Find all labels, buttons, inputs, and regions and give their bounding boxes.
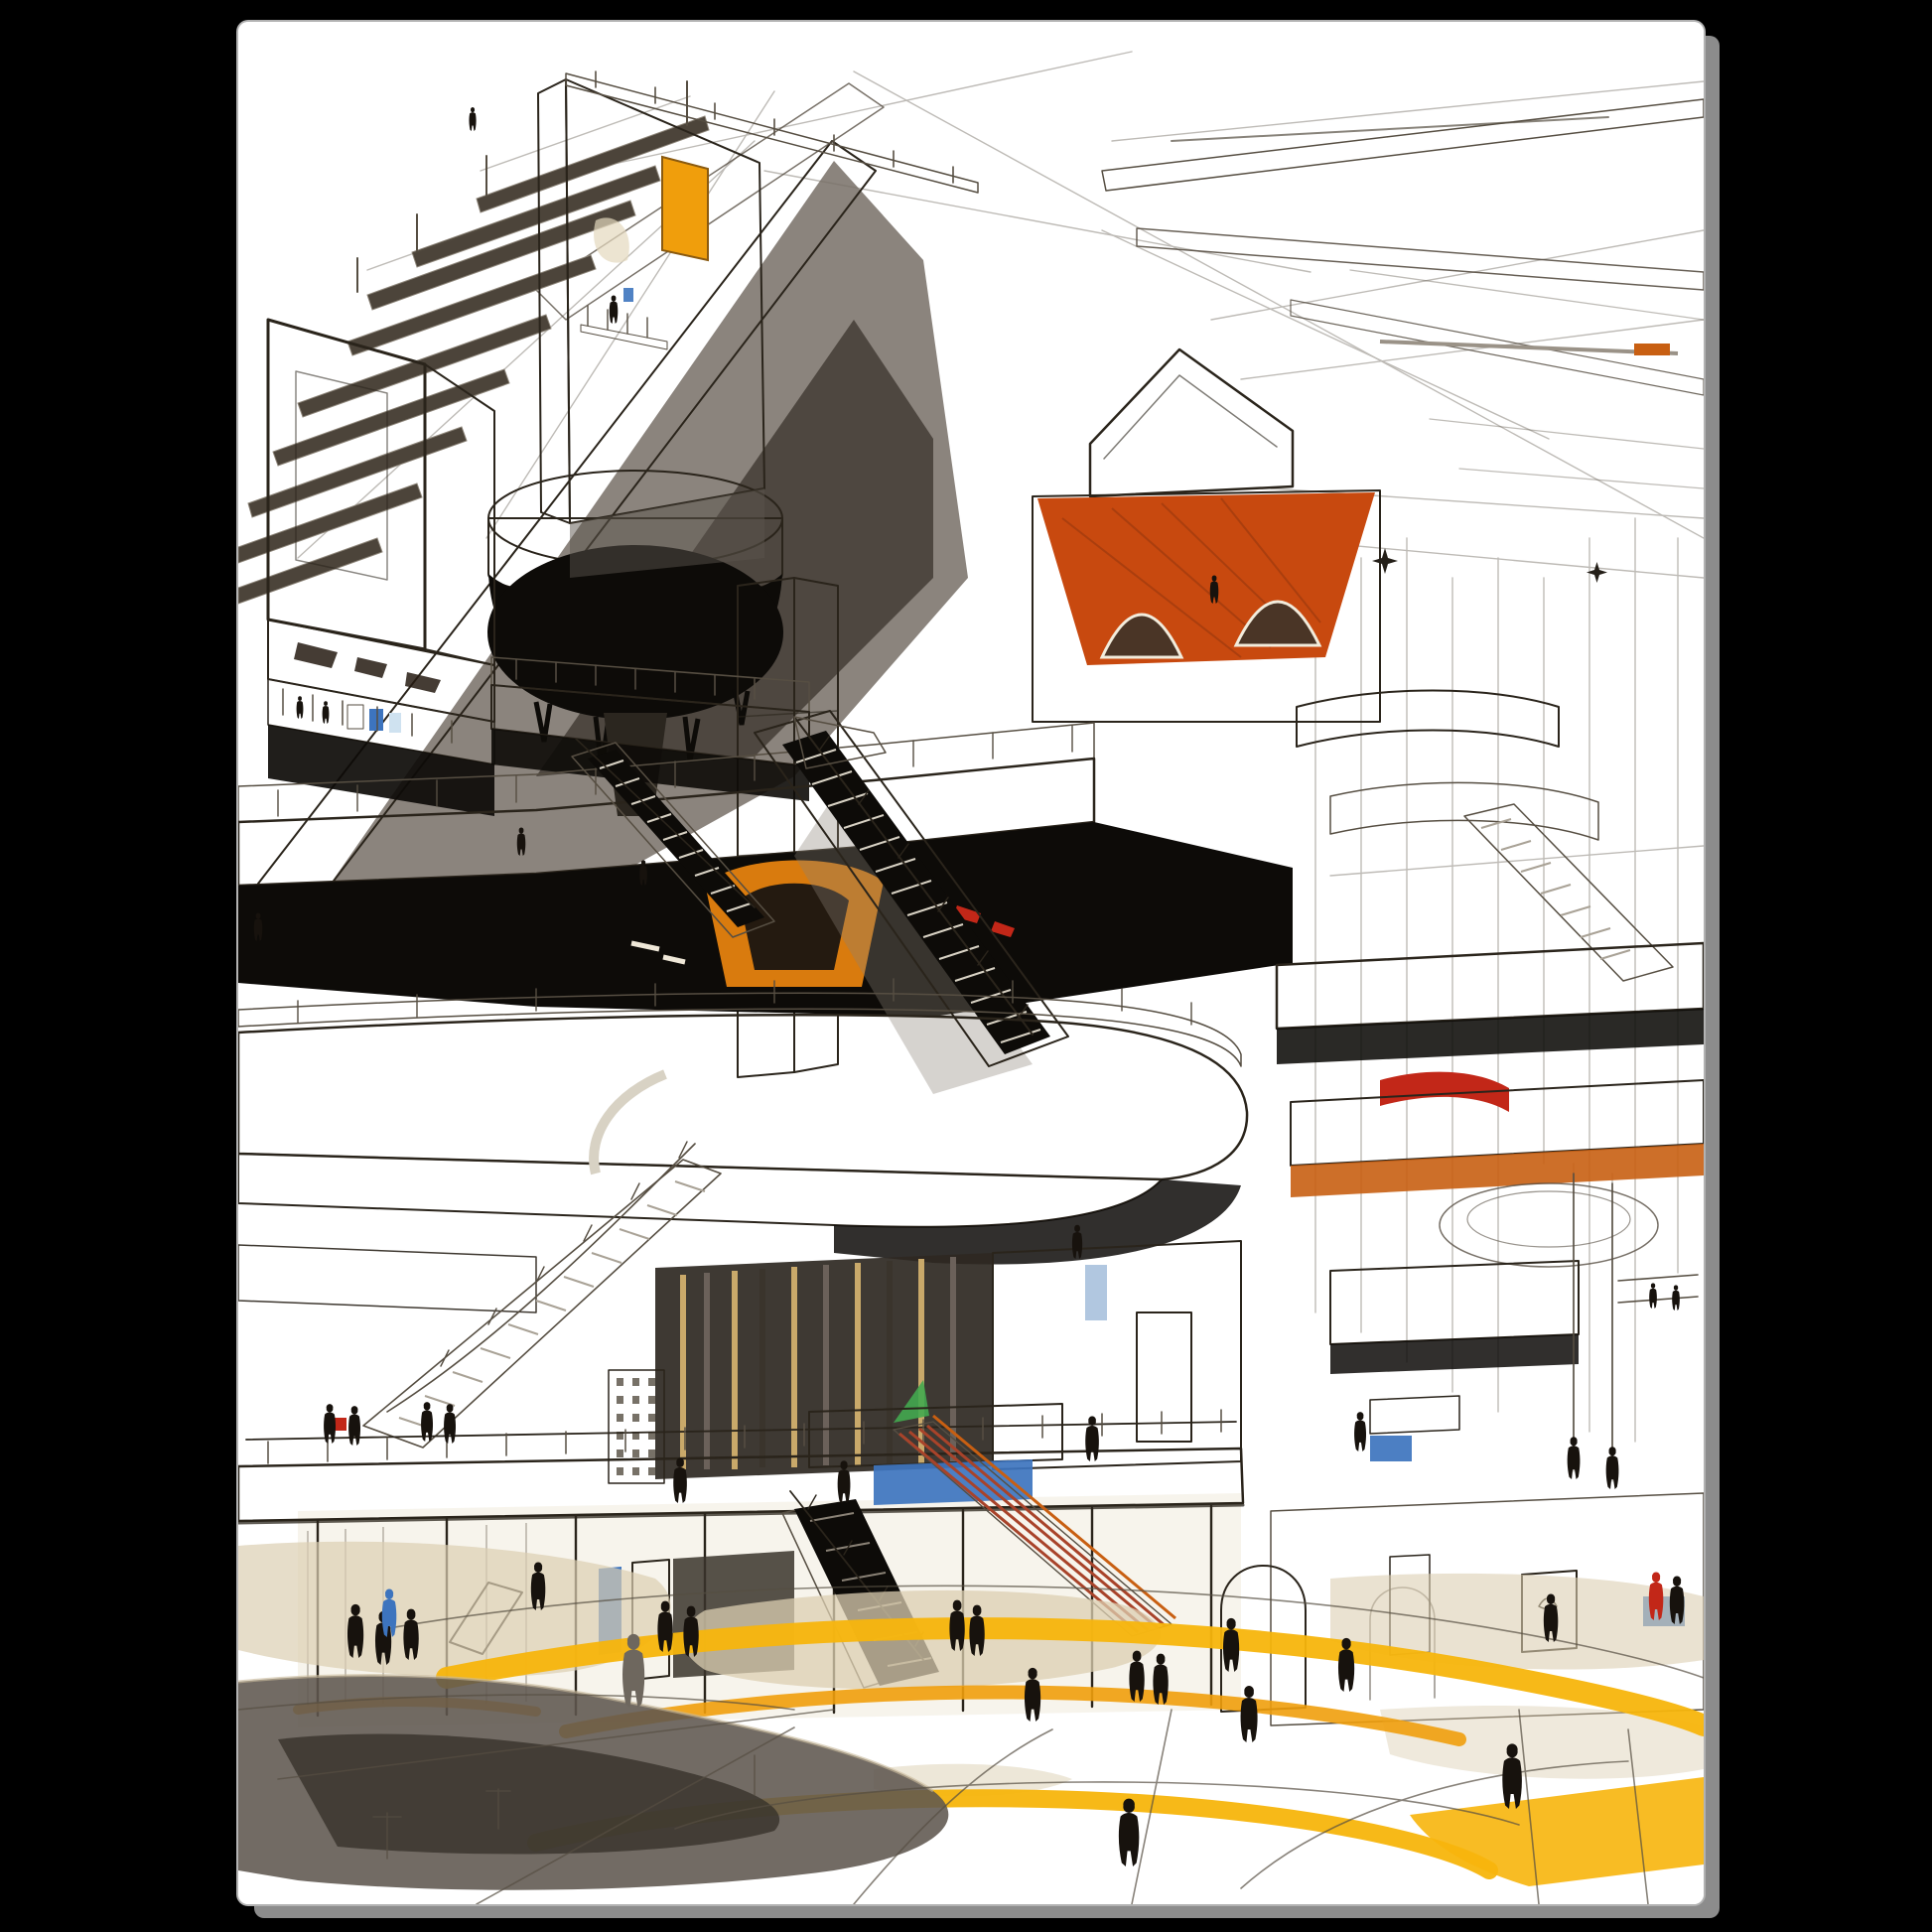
backdrop: Fantastical multi-level constructivist b…	[0, 0, 1932, 1932]
poster: Fantastical multi-level constructivist b…	[238, 22, 1704, 1904]
orange-beam-tip	[1634, 344, 1670, 355]
blue-panel	[1370, 1436, 1412, 1461]
artwork	[238, 22, 1704, 1904]
tower-yellow-door	[662, 157, 708, 260]
